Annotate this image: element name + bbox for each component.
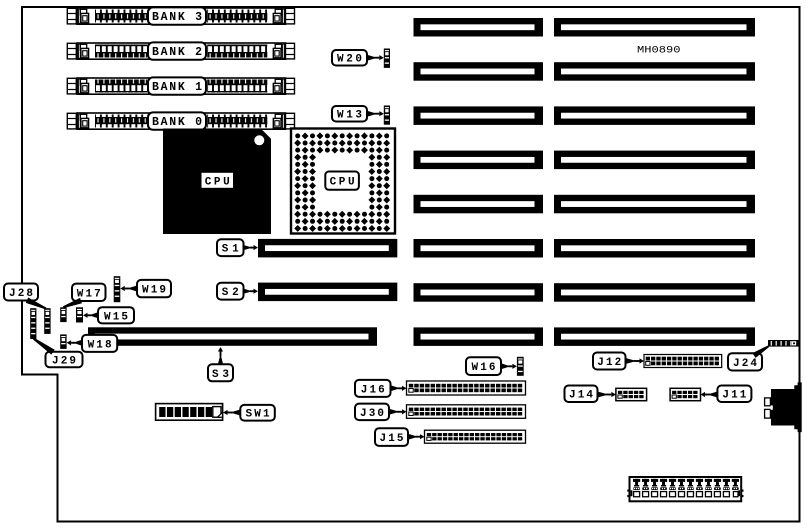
svg-text:J30: J30	[360, 408, 384, 420]
svg-text:W20: W20	[337, 54, 362, 66]
svg-text:J11: J11	[722, 390, 746, 402]
svg-text:J14: J14	[569, 390, 593, 402]
svg-text:W15: W15	[104, 311, 128, 323]
svg-text:J12: J12	[597, 357, 621, 369]
svg-text:J16: J16	[361, 384, 385, 396]
svg-text:MH0890: MH0890	[637, 46, 681, 57]
svg-text:W16: W16	[472, 362, 496, 374]
svg-text:CPU: CPU	[330, 177, 355, 189]
svg-text:W18: W18	[88, 339, 112, 351]
svg-text:W17: W17	[77, 288, 101, 300]
svg-text:CPU: CPU	[205, 176, 230, 188]
svg-text:J29: J29	[52, 355, 76, 367]
svg-text:J28: J28	[9, 288, 33, 300]
svg-text:J15: J15	[380, 433, 404, 445]
svg-text:W19: W19	[142, 285, 166, 297]
svg-text:SW1: SW1	[246, 409, 270, 421]
svg-text:W13: W13	[337, 110, 362, 122]
svg-text:J24: J24	[733, 358, 757, 370]
